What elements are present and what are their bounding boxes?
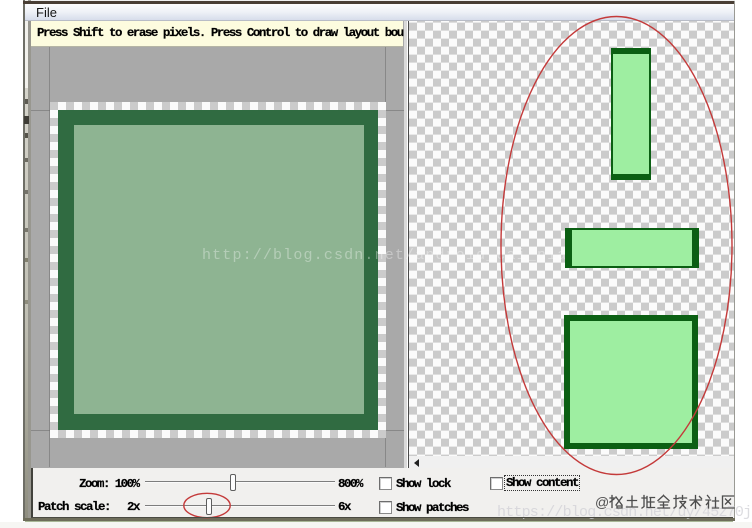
svg-text:@: @	[595, 494, 609, 510]
